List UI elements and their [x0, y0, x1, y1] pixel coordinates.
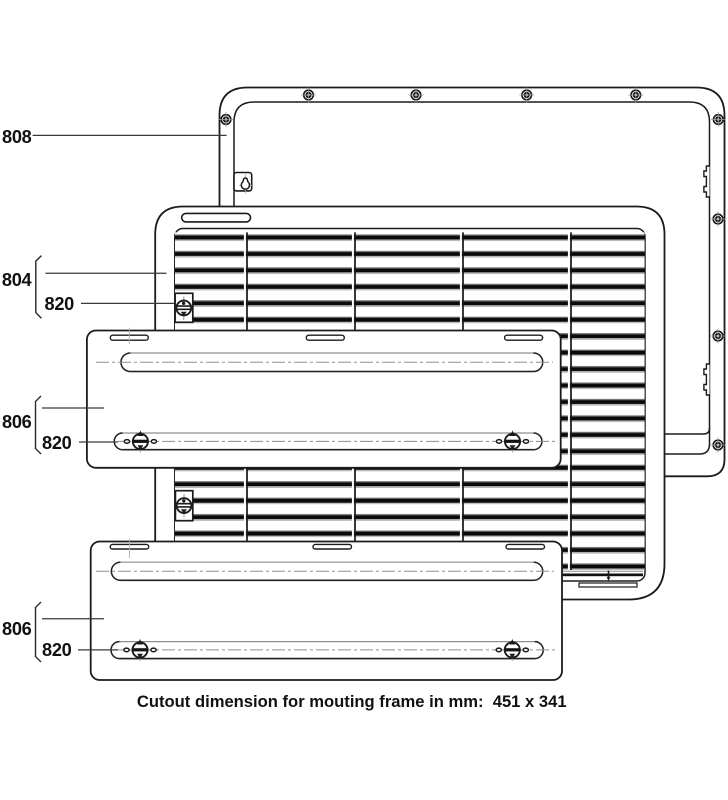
svg-text:806: 806 [2, 619, 32, 639]
svg-text:820: 820 [42, 640, 72, 660]
svg-text:820: 820 [42, 433, 72, 453]
svg-text:804: 804 [2, 270, 33, 290]
svg-text:806: 806 [2, 412, 32, 432]
svg-text:820: 820 [45, 294, 75, 314]
svg-text:Cutout dimension for mouting f: Cutout dimension for mouting frame in mm… [137, 692, 567, 711]
svg-text:808: 808 [2, 127, 32, 147]
